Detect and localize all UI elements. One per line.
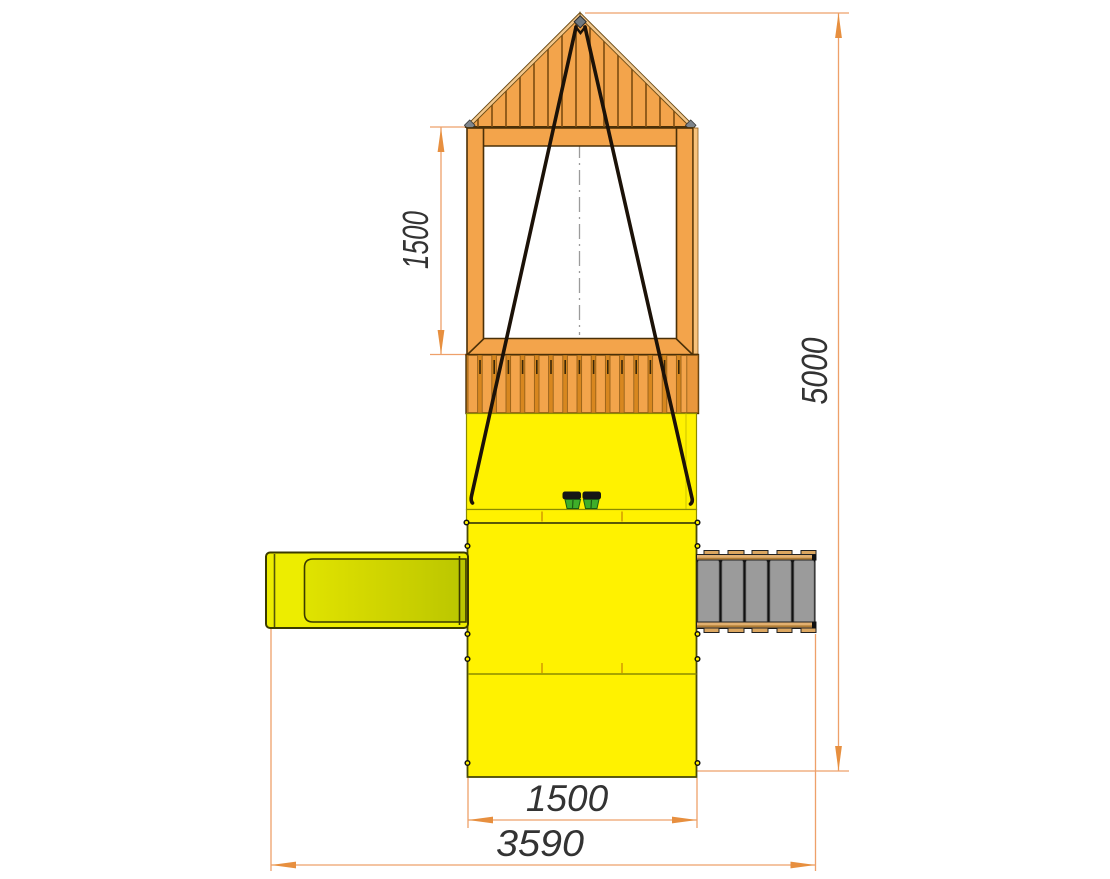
- svg-text:5000: 5000: [794, 338, 835, 405]
- svg-text:3590: 3590: [496, 823, 584, 864]
- svg-text:1500: 1500: [395, 211, 436, 269]
- svg-text:1500: 1500: [526, 778, 609, 819]
